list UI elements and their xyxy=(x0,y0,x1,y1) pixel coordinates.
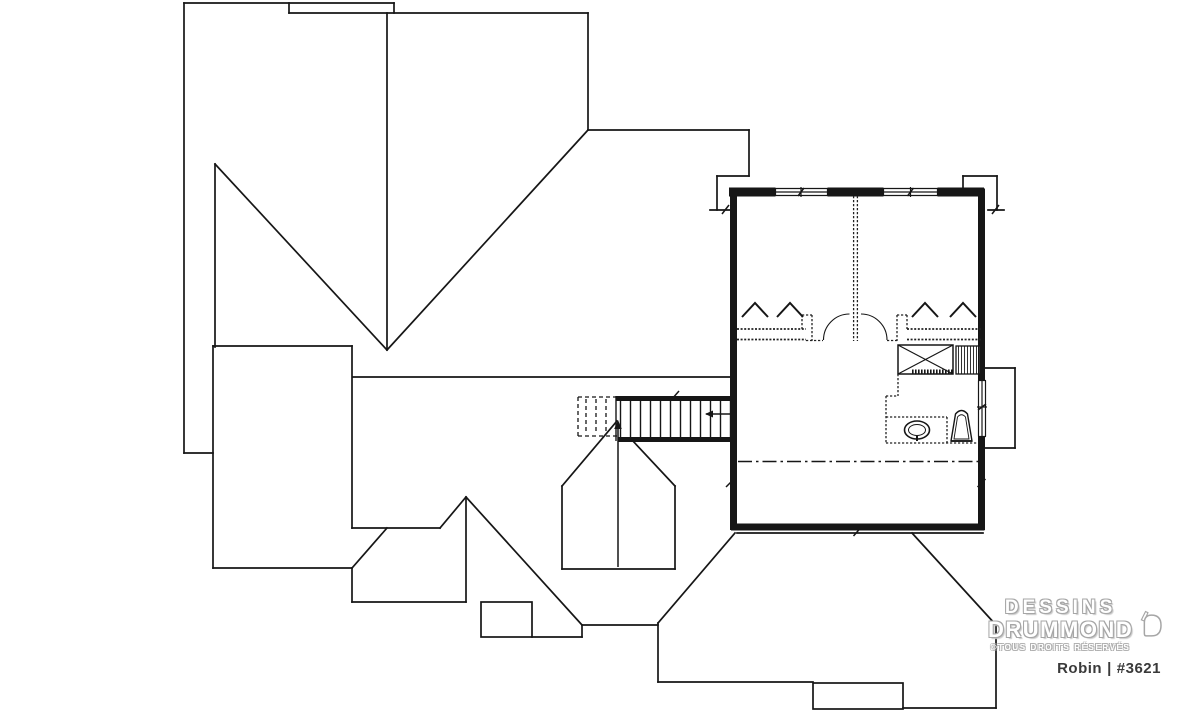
plan-name: Robin xyxy=(1057,660,1102,677)
blueprint-canvas: DESSINS DRUMMOND ©TOUS DROITS RÉSERVÉS R… xyxy=(0,0,1200,711)
plan-id-divider: | xyxy=(1107,660,1112,677)
closet-right xyxy=(897,303,982,341)
ridge-direction-arrow xyxy=(614,420,622,567)
roof-outline xyxy=(184,3,1015,709)
closet-left xyxy=(737,303,812,341)
logo-brand-line2: DRUMMOND xyxy=(988,619,1133,641)
plan-number: #3621 xyxy=(1117,660,1161,677)
shower-unit xyxy=(898,345,953,374)
window-front-left xyxy=(776,187,828,197)
stair-treads-hidden xyxy=(578,397,618,436)
stair-direction-arrow xyxy=(705,411,713,418)
plan-identifier: Robin|#3621 xyxy=(988,660,1163,677)
exterior-walls xyxy=(729,189,985,531)
door-swings xyxy=(824,314,888,340)
window-front-right xyxy=(884,187,938,197)
bathroom xyxy=(886,374,978,443)
staircase xyxy=(578,391,737,441)
linen-shelves xyxy=(956,346,981,374)
toilet xyxy=(951,411,972,442)
dessins-drummond-logo: DESSINS DRUMMOND ©TOUS DROITS RÉSERVÉS R… xyxy=(988,598,1163,677)
rights-notice: ©TOUS DROITS RÉSERVÉS xyxy=(988,644,1133,652)
drummond-door-icon xyxy=(1139,600,1163,648)
bifold-doors-right xyxy=(912,303,976,317)
bifold-doors-left xyxy=(742,303,803,317)
logo-brand-line1: DESSINS xyxy=(988,598,1133,617)
stair-treads xyxy=(621,401,731,437)
sink xyxy=(905,421,930,441)
window-side-right xyxy=(977,381,987,437)
bedroom-partition xyxy=(806,196,898,341)
